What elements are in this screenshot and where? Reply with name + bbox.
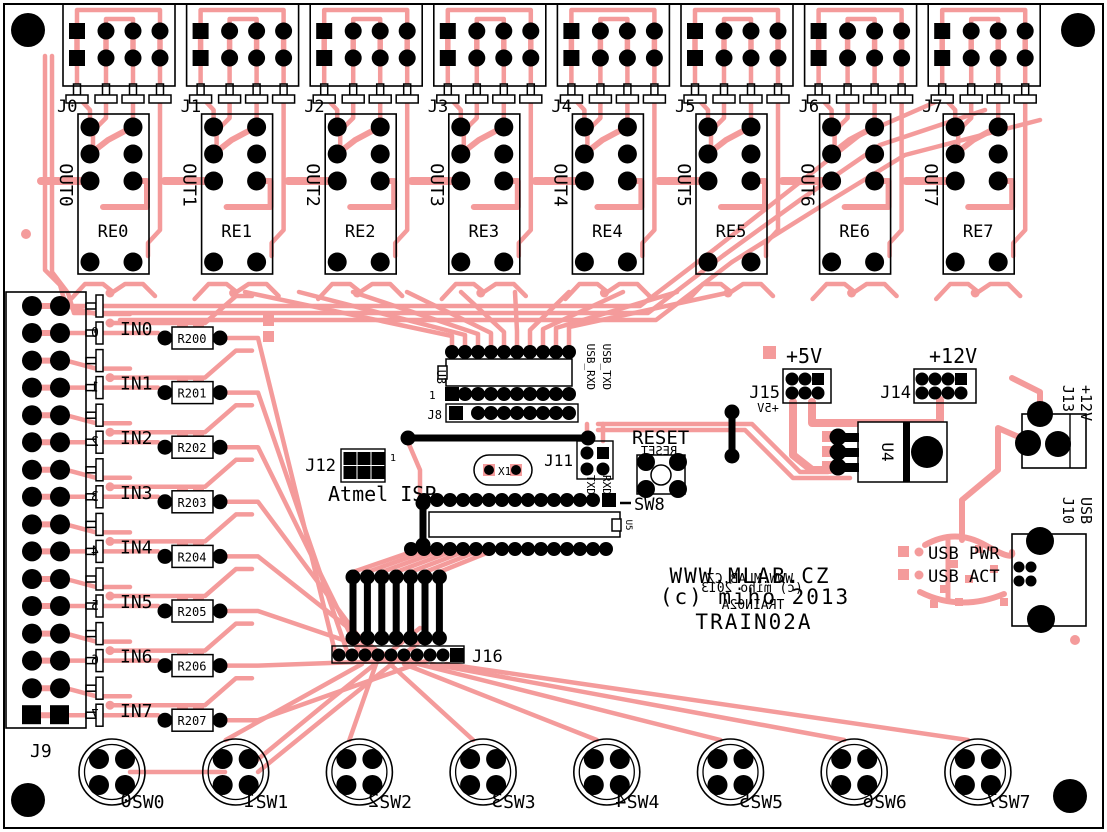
label-IN5: IN5 [120, 592, 153, 613]
label-J15: J15 [749, 383, 780, 403]
label-J7: J7 [922, 97, 942, 117]
label-J0: J0 [57, 97, 77, 117]
label-RE3: RE3 [468, 222, 499, 242]
label-J11: J11 [544, 451, 573, 470]
mirror-RESET: RESET [641, 444, 677, 458]
mirror-digit-sw: 5 [739, 790, 750, 812]
label-OUT4: OUT4 [549, 163, 570, 206]
pin1-J12: 1 [390, 453, 396, 464]
label-USB_RXD: USB_RXD [584, 344, 597, 390]
label-RE0: RE0 [98, 222, 129, 242]
title-copyright: (c) miho 2013 [660, 585, 850, 609]
label-usb-act: USB ACT [928, 567, 1000, 587]
mounting-hole [1053, 779, 1087, 813]
label-RE6: RE6 [839, 222, 870, 242]
label-IN7: IN7 [120, 701, 153, 722]
mirror-digit-7: 7 [91, 708, 99, 723]
mirror-digit-sw: 1 [244, 790, 255, 812]
label-J5: J5 [675, 97, 695, 117]
label-J1: J1 [181, 97, 201, 117]
label-RE2: RE2 [345, 222, 376, 242]
label-SW8: SW8 [634, 495, 665, 515]
label-J12: J12 [305, 456, 336, 476]
label-OUT0: OUT0 [55, 163, 76, 206]
label-R203: R203 [178, 496, 207, 510]
mirror-digit-sw: 4 [615, 790, 626, 812]
label-R201: R201 [178, 387, 207, 401]
label-TXD: TXD [584, 475, 597, 495]
label-atmel-isp: Atmel ISP [328, 482, 436, 506]
label-IN0: IN0 [120, 319, 153, 340]
mirror-digit-6: 6 [91, 654, 99, 669]
label-R207: R207 [178, 714, 207, 728]
label-SW2: SW2 [379, 792, 412, 813]
label-J2: J2 [304, 97, 324, 117]
label-U5: U5 [623, 520, 633, 531]
mirror-digit-sw: 3 [491, 790, 502, 812]
label-RXD: RXD [600, 475, 613, 495]
label-J4: J4 [551, 97, 571, 117]
mounting-hole [11, 13, 45, 47]
label-U3: U3 [434, 370, 448, 384]
label-SW3: SW3 [503, 792, 536, 813]
label-IN4: IN4 [120, 537, 153, 558]
label-R205: R205 [178, 605, 207, 619]
pin1-marker: 1 [429, 389, 436, 402]
label-usb-pwr: USB PWR [928, 544, 1000, 564]
label-OUT6: OUT6 [797, 163, 818, 206]
label-SW6: SW6 [874, 792, 907, 813]
label-RE4: RE4 [592, 222, 623, 242]
label-OUT5: OUT5 [673, 163, 694, 206]
mounting-hole [11, 783, 45, 817]
label-OUT7: OUT7 [920, 163, 941, 206]
label-RE7: RE7 [963, 222, 994, 242]
label-SW0: SW0 [132, 792, 165, 813]
pcb-layout-drawing: J0RE0OUT0J1RE1OUT1J2RE2OUT2J3RE3OUT3J4RE… [0, 0, 1107, 832]
label-J8: J8 [428, 408, 442, 422]
mirror-+5V: +5V [757, 401, 779, 415]
title-board-name: TRAIN02A [695, 610, 812, 634]
label-RE1: RE1 [221, 222, 252, 242]
label-U4: U4 [878, 442, 897, 461]
label-SW1: SW1 [256, 792, 289, 813]
label-J13: J13 [1059, 385, 1077, 412]
mirror-digit-3: 3 [91, 490, 99, 505]
label-R200: R200 [178, 332, 207, 346]
mirror-digit-sw: 6 [862, 790, 873, 812]
mirror-digit-sw: 2 [368, 790, 379, 812]
mirror-digit-4: 4 [91, 544, 99, 559]
mirror-digit-2: 2 [91, 435, 99, 450]
label-J3: J3 [428, 97, 448, 117]
label-IN6: IN6 [120, 647, 153, 668]
mounting-hole [1061, 13, 1095, 47]
label-+12V: +12V [929, 344, 977, 368]
label-J10-USB: USB [1077, 497, 1095, 524]
label-OUT1: OUT1 [179, 163, 200, 206]
mirror-digit-0: 0 [91, 326, 99, 341]
label-J16: J16 [472, 647, 503, 667]
label-SW7: SW7 [998, 792, 1031, 813]
mirror-digit-5: 5 [91, 599, 99, 614]
label-J14: J14 [880, 383, 911, 403]
label-J10: J10 [1059, 497, 1077, 524]
label-USB_TXD: USB_TXD [600, 344, 613, 390]
pcb-board: J0RE0OUT0J1RE1OUT1J2RE2OUT2J3RE3OUT3J4RE… [0, 0, 1107, 832]
label-J9: J9 [30, 741, 52, 762]
label-OUT3: OUT3 [426, 163, 447, 206]
label-IN3: IN3 [120, 483, 153, 504]
mirror-digit-sw: 0 [120, 790, 131, 812]
label-+5V: +5V [786, 344, 822, 368]
label-SW4: SW4 [627, 792, 660, 813]
mirror-digit-sw: 7 [986, 790, 997, 812]
label-IN2: IN2 [120, 428, 153, 449]
label-RE5: RE5 [716, 222, 747, 242]
mirror-digit-1: 1 [91, 381, 99, 396]
label-OUT2: OUT2 [302, 163, 323, 206]
label-R204: R204 [178, 550, 207, 564]
label-X1: X1 [498, 465, 511, 478]
label-R202: R202 [178, 441, 207, 455]
label-R206: R206 [178, 660, 207, 674]
label-IN1: IN1 [120, 374, 153, 395]
label-SW5: SW5 [751, 792, 784, 813]
label-J6: J6 [799, 97, 819, 117]
label-J13-+12V: +12V [1077, 385, 1095, 421]
